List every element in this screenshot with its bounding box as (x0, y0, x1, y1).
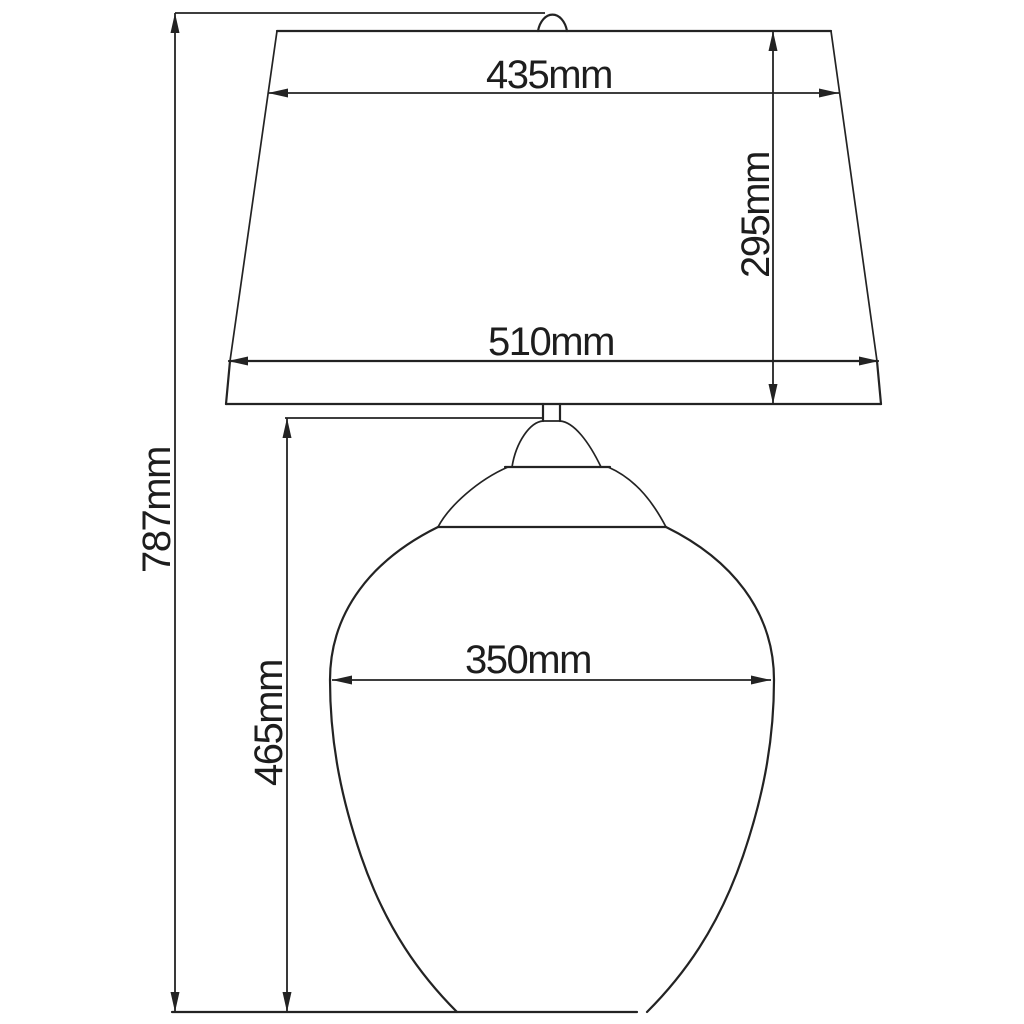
shade-left-slant (230, 31, 277, 361)
dimension-labels: 435mm 510mm 350mm 295mm 787mm 465mm (135, 53, 778, 786)
arrow-295-bottom (769, 384, 778, 404)
finial-arc (538, 15, 567, 31)
cap-dome (512, 421, 601, 467)
label-shade-top-width: 435mm (486, 53, 612, 97)
arrow-465-bottom (283, 992, 292, 1012)
arrow-350-left (332, 676, 352, 685)
arrow-435-left (268, 89, 288, 98)
dimension-drawing-svg: 435mm 510mm 350mm 295mm 787mm 465mm (0, 0, 1024, 1024)
lamp-dimension-diagram: 435mm 510mm 350mm 295mm 787mm 465mm (0, 0, 1024, 1024)
shade-rim-left-edge (226, 361, 230, 404)
shoulder-left-curve (438, 467, 508, 527)
arrow-787-top (171, 13, 180, 33)
arrow-787-bottom (171, 992, 180, 1012)
arrow-295-top (769, 31, 778, 51)
shade-rim-right-edge (877, 361, 881, 404)
arrow-465-top (283, 418, 292, 438)
label-shade-height: 295mm (734, 152, 778, 278)
label-body-width: 350mm (465, 638, 591, 682)
label-body-height: 465mm (247, 660, 291, 786)
label-overall-height: 787mm (135, 447, 179, 573)
body-right-profile (647, 527, 774, 1012)
shade-right-slant (831, 31, 877, 361)
label-shade-bottom-width: 510mm (488, 320, 614, 364)
body-left-profile (330, 527, 457, 1012)
arrow-435-right (819, 89, 839, 98)
arrow-350-right (751, 676, 771, 685)
shoulder-right-curve (608, 467, 666, 527)
